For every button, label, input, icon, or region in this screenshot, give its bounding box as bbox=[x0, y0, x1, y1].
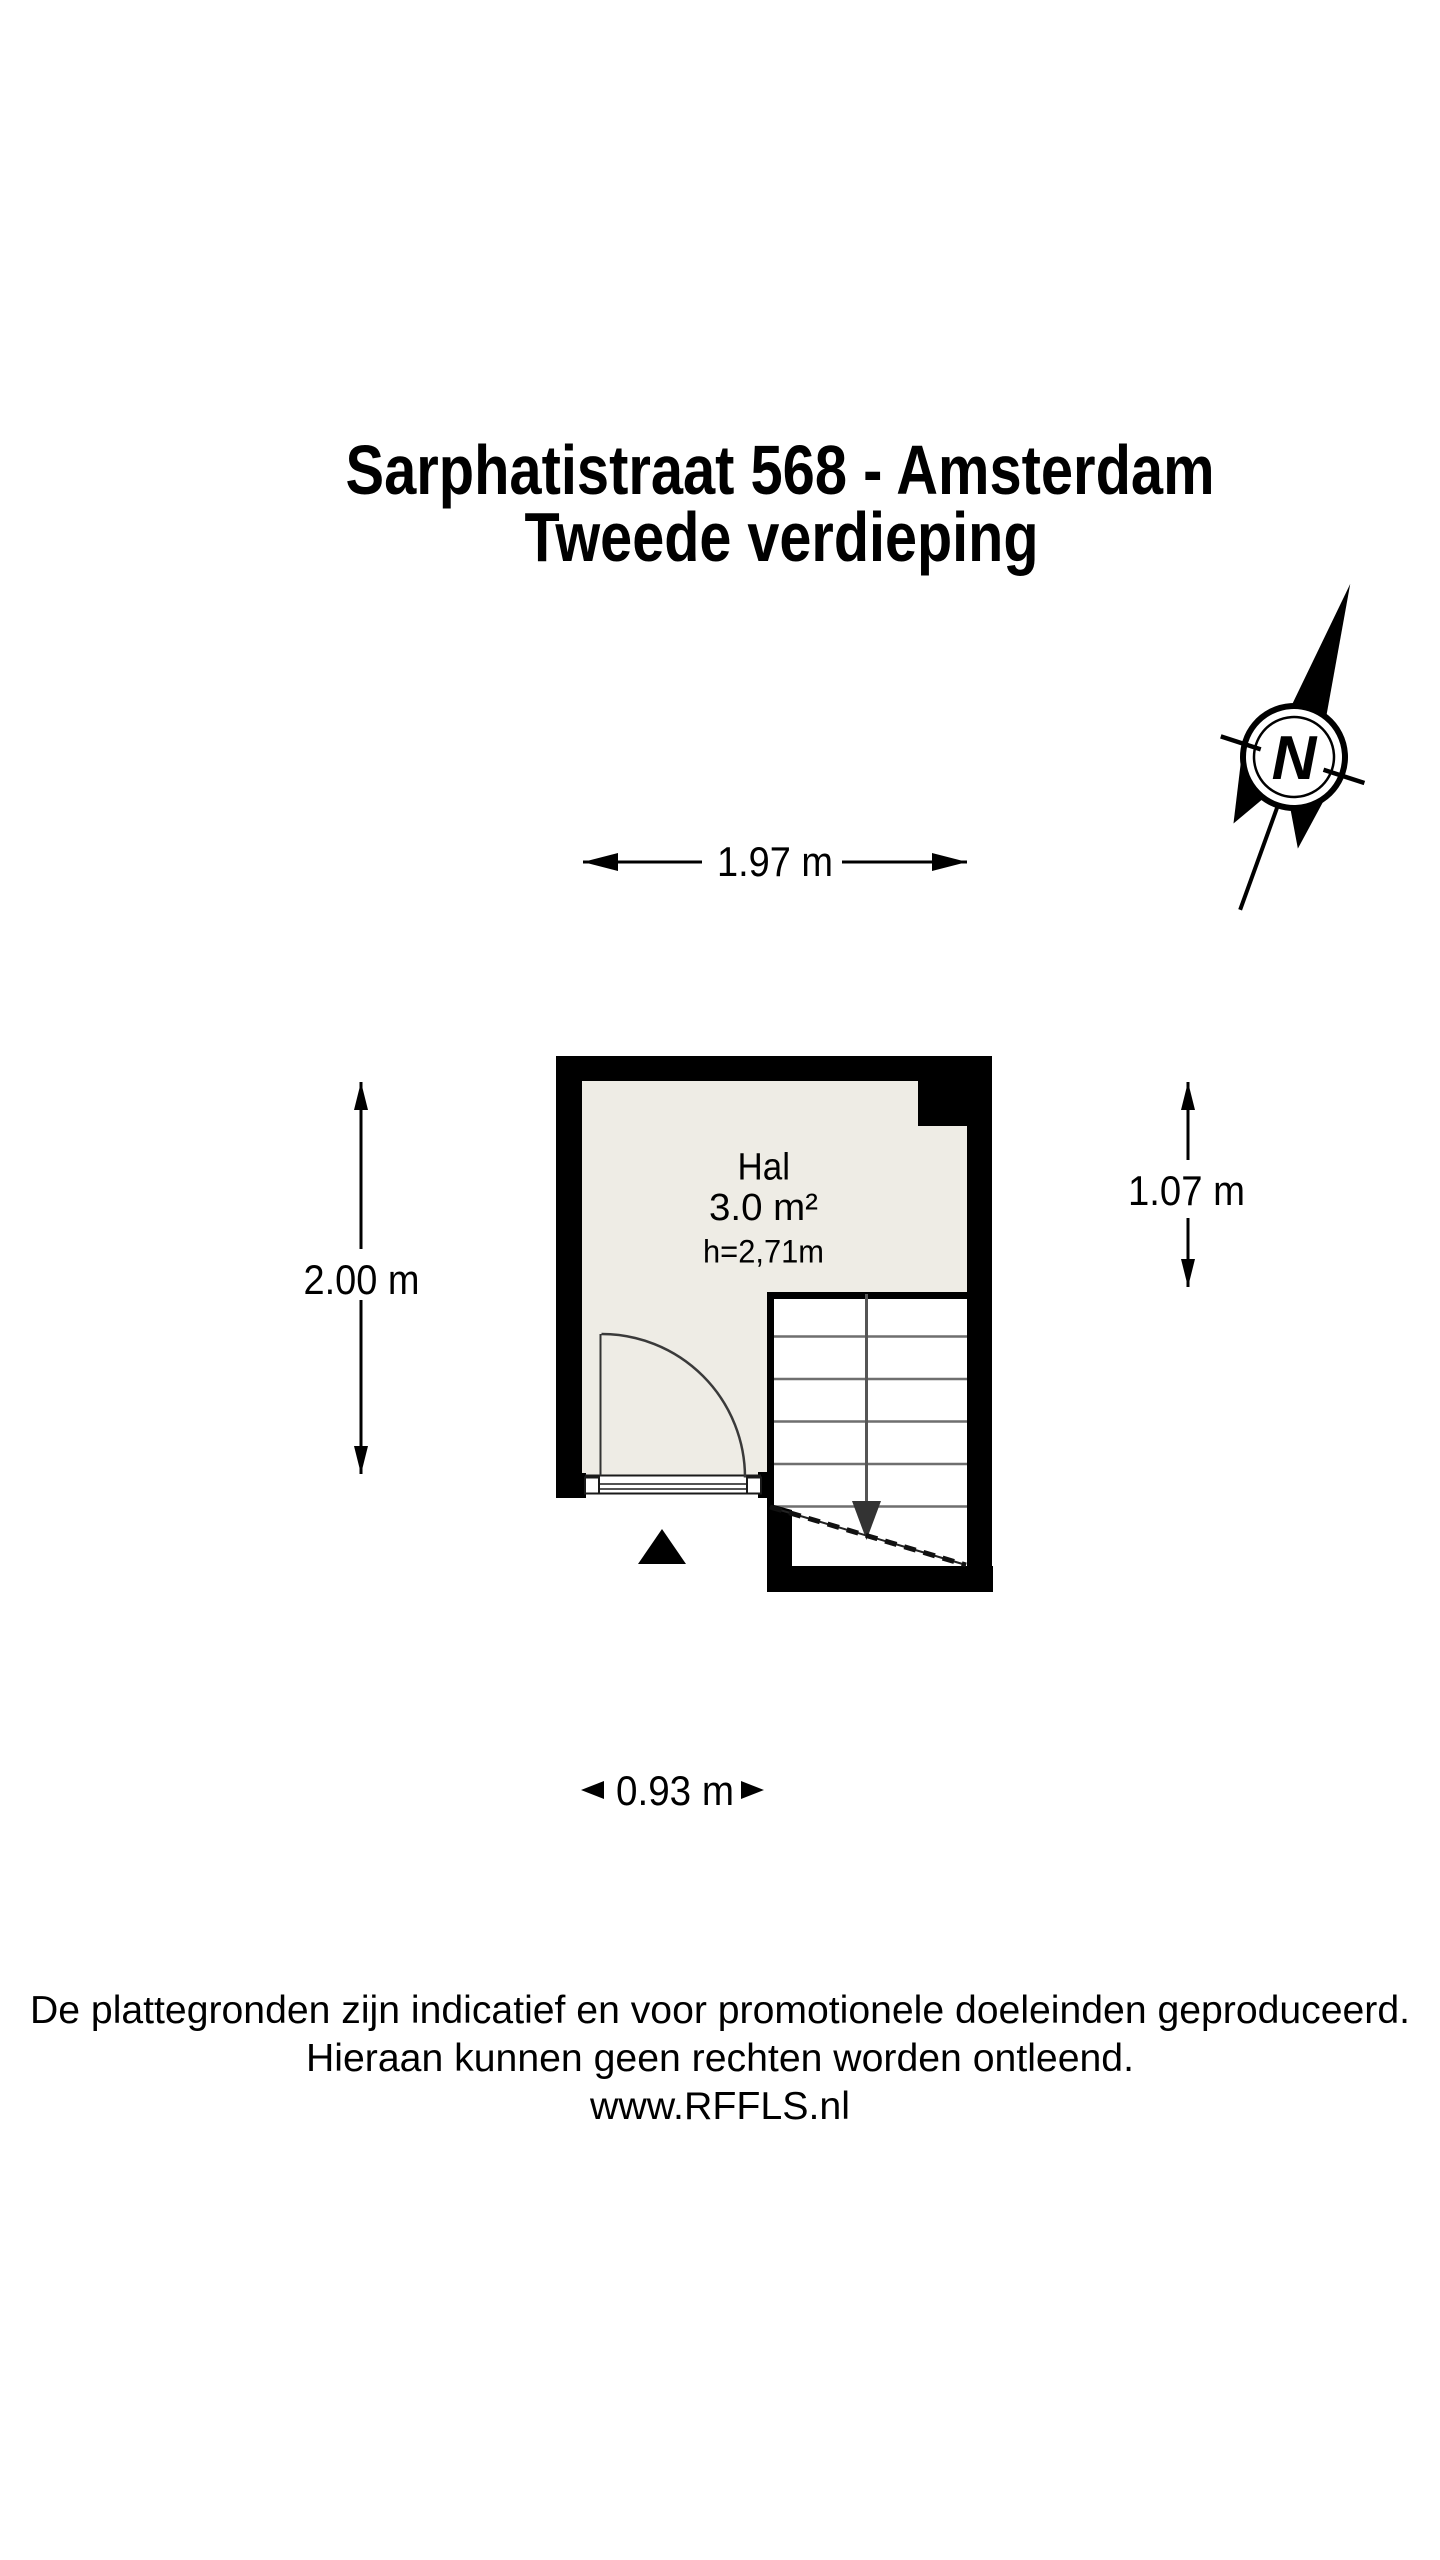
svg-text:N: N bbox=[1272, 724, 1318, 793]
svg-text:www.RFFLS.nl: www.RFFLS.nl bbox=[589, 2085, 850, 2128]
svg-text:Hieraan kunnen geen rechten wo: Hieraan kunnen geen rechten worden ontle… bbox=[306, 2037, 1134, 2080]
svg-text:3.0 m²: 3.0 m² bbox=[709, 1187, 818, 1229]
svg-text:h=2,71m: h=2,71m bbox=[703, 1234, 824, 1270]
svg-text:1.97 m: 1.97 m bbox=[717, 838, 833, 885]
svg-text:Tweede verdieping: Tweede verdieping bbox=[525, 498, 1039, 576]
svg-text:2.00 m: 2.00 m bbox=[304, 1256, 420, 1303]
svg-text:Hal: Hal bbox=[738, 1147, 791, 1189]
svg-text:0.93 m: 0.93 m bbox=[616, 1767, 734, 1814]
svg-text:1.07 m: 1.07 m bbox=[1128, 1167, 1245, 1214]
svg-text:De plattegronden zijn indicati: De plattegronden zijn indicatief en voor… bbox=[30, 1989, 1410, 2032]
